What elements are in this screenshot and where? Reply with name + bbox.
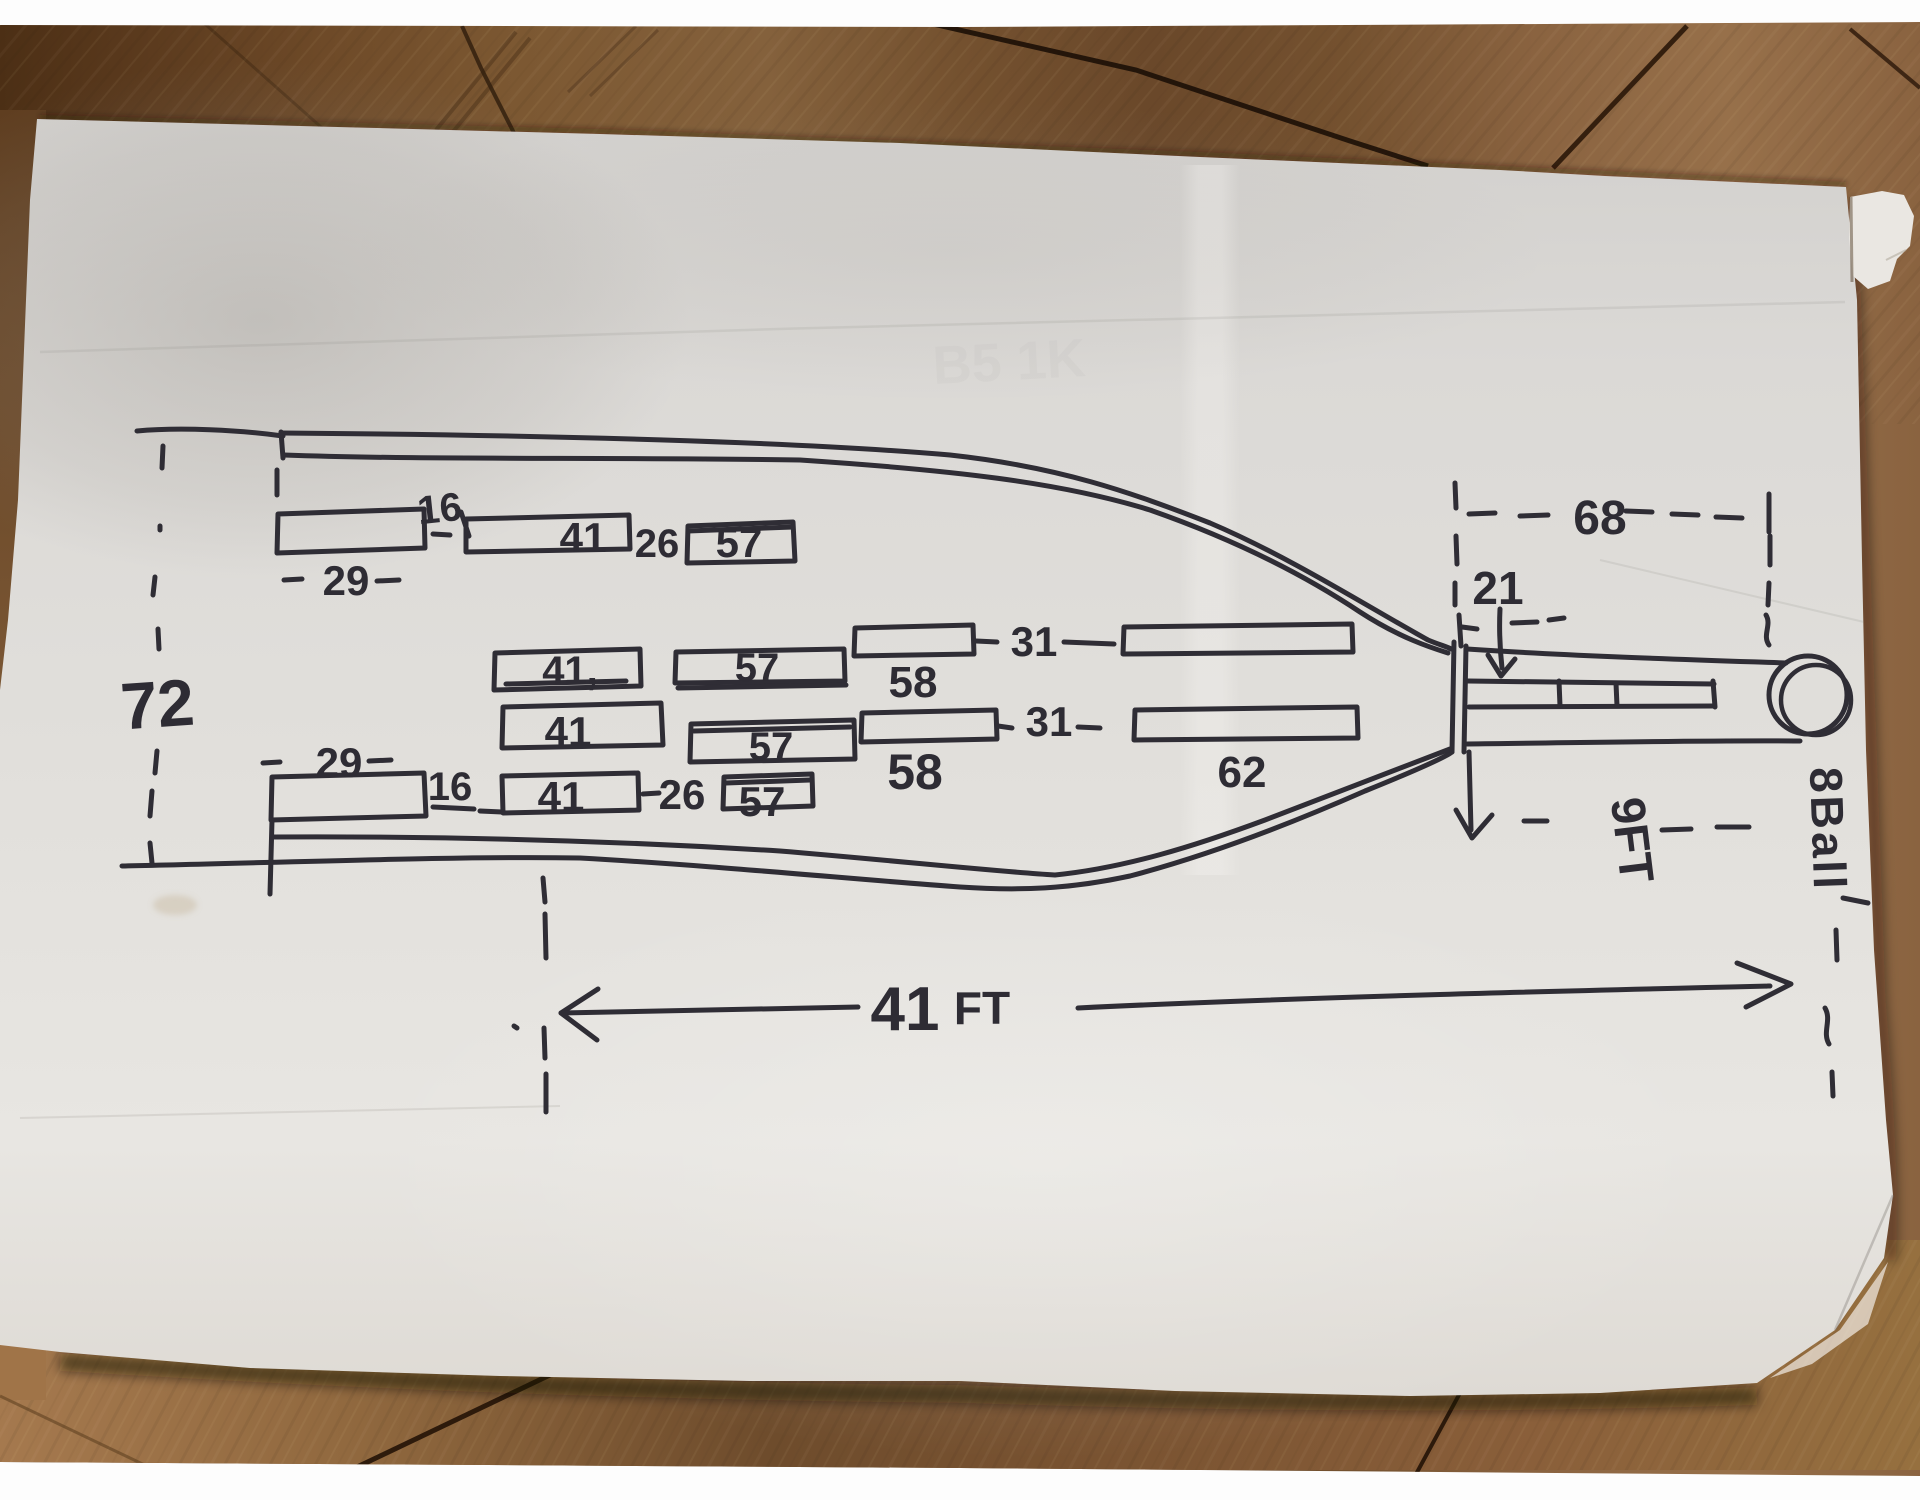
- svg-text:41,: 41,: [542, 649, 598, 693]
- svg-text:41: 41: [560, 514, 607, 561]
- svg-text:B5 1K: B5 1K: [931, 328, 1087, 396]
- svg-text:29: 29: [316, 739, 363, 786]
- svg-text:26: 26: [635, 522, 680, 566]
- svg-text:62: 62: [1218, 748, 1267, 797]
- svg-text:9FT: 9FT: [1600, 795, 1663, 886]
- svg-text:16: 16: [415, 485, 464, 533]
- svg-text:58: 58: [889, 658, 938, 707]
- svg-text:58: 58: [887, 744, 943, 800]
- svg-text:41: 41: [538, 773, 585, 820]
- svg-text:26: 26: [659, 771, 706, 818]
- svg-text:31: 31: [1026, 698, 1073, 745]
- svg-text:29: 29: [323, 557, 370, 604]
- svg-text:21: 21: [1472, 562, 1523, 614]
- svg-text:57: 57: [716, 519, 763, 566]
- svg-text:8Ball: 8Ball: [1800, 766, 1856, 893]
- svg-text:31: 31: [1011, 618, 1058, 665]
- svg-text:57: 57: [735, 646, 780, 690]
- svg-text:FT: FT: [954, 982, 1010, 1034]
- svg-text:68: 68: [1573, 492, 1626, 545]
- svg-text:57: 57: [749, 725, 794, 769]
- svg-text:72: 72: [118, 665, 196, 744]
- svg-text:57: 57: [739, 778, 786, 825]
- svg-text:16: 16: [428, 765, 473, 809]
- svg-text:41: 41: [545, 708, 592, 755]
- svg-text:41: 41: [871, 975, 940, 1044]
